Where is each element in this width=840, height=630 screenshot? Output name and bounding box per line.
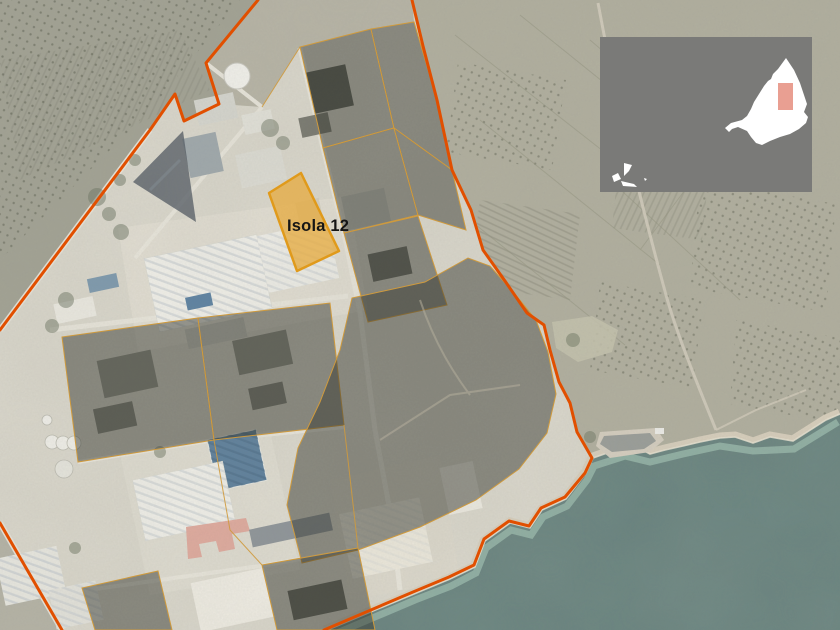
map-figure: Isola 12 [0, 0, 840, 630]
inset-highlight-marker [778, 83, 793, 110]
satellite-map: Isola 12 [0, 0, 840, 630]
inset-map [600, 37, 812, 192]
isola-12-label: Isola 12 [287, 217, 349, 235]
